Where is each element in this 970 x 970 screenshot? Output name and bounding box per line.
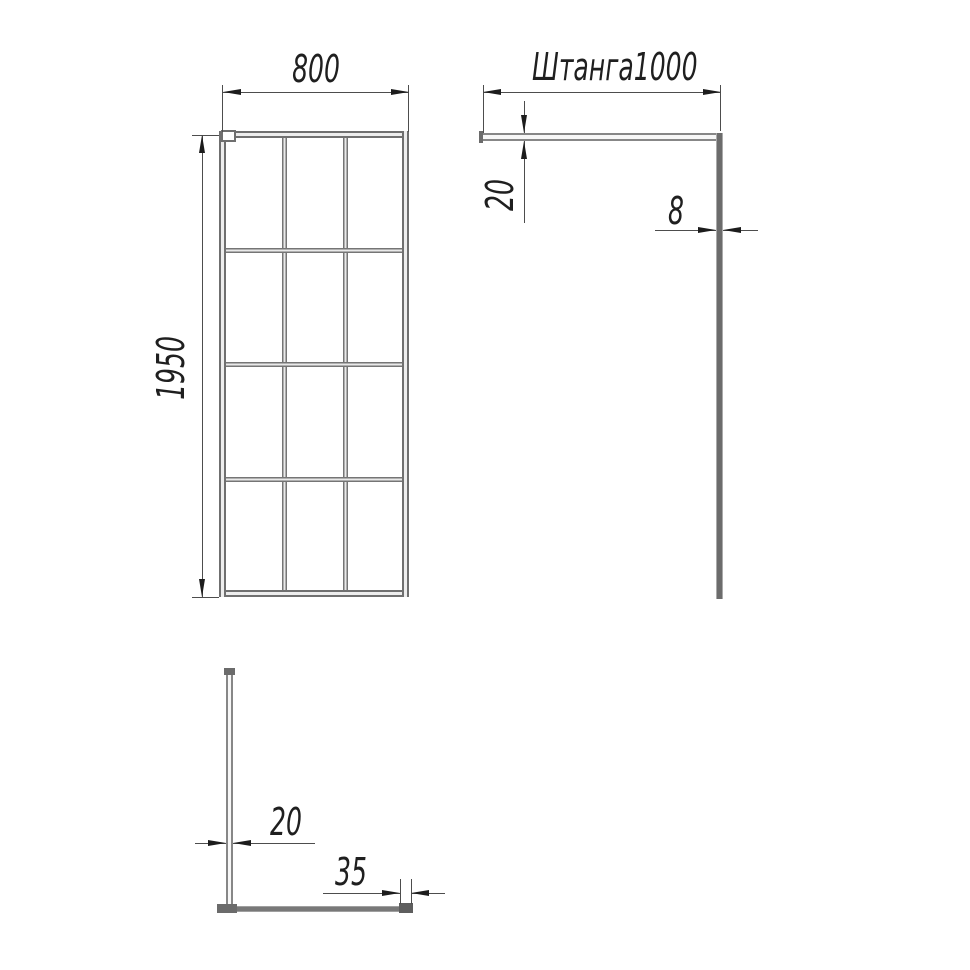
front-muntin-horizontal-1	[226, 248, 402, 253]
front-frame-top	[219, 131, 409, 138]
dim-20-top-text: 20	[260, 803, 313, 841]
rod-bracket	[221, 130, 236, 142]
dim-20-side-arrow-up	[521, 141, 527, 159]
dim-1950-line	[202, 135, 203, 597]
dim-1950-extension-bottom	[192, 597, 219, 598]
top-wall-profile-cap	[399, 903, 413, 913]
dim-800-line	[223, 92, 409, 93]
dim-20-top-arrow-right	[208, 840, 226, 846]
top-rod-end-cap	[224, 668, 235, 675]
dim-8-arrow-right	[698, 227, 716, 233]
dim-8-arrow-left	[723, 227, 741, 233]
dim-rod-arrow-left	[483, 89, 501, 95]
dim-35-text: 35	[325, 853, 378, 891]
dim-20-side-arrow-down	[521, 115, 527, 133]
front-muntin-horizontal-2	[226, 362, 402, 367]
front-muntin-horizontal-3	[226, 477, 402, 482]
top-rod	[226, 674, 233, 906]
front-frame-left	[219, 131, 226, 597]
dim-35-arrow-right	[382, 890, 400, 896]
dim-rod-arrow-right	[703, 89, 721, 95]
dim-20-side-text: 20	[481, 162, 519, 228]
dim-1950-text: 1950	[152, 322, 190, 414]
dim-20-top-arrow-left	[233, 840, 251, 846]
dim-1950-arrow-bottom	[199, 579, 205, 597]
side-rod-bar	[481, 133, 722, 141]
technical-drawing-canvas: 800 1950 Штанга1000 20 8	[0, 0, 970, 970]
dim-800-arrow-left	[223, 89, 241, 95]
dim-1950-extension-top	[192, 135, 219, 136]
top-glass-panel	[218, 906, 412, 912]
dim-800-arrow-right	[391, 89, 409, 95]
top-glass-left-cap	[217, 904, 237, 913]
dim-rod-text: Штанга1000	[532, 48, 664, 86]
dim-rod-line	[483, 92, 721, 93]
dim-800-text: 800	[283, 50, 349, 88]
front-frame-bottom	[219, 590, 409, 597]
front-frame-right	[402, 131, 409, 597]
side-glass-panel	[716, 133, 723, 599]
dim-35-extension-left	[400, 879, 401, 904]
dim-8-text: 8	[656, 192, 696, 230]
dim-1950-arrow-top	[199, 135, 205, 153]
dim-35-arrow-left	[411, 890, 429, 896]
